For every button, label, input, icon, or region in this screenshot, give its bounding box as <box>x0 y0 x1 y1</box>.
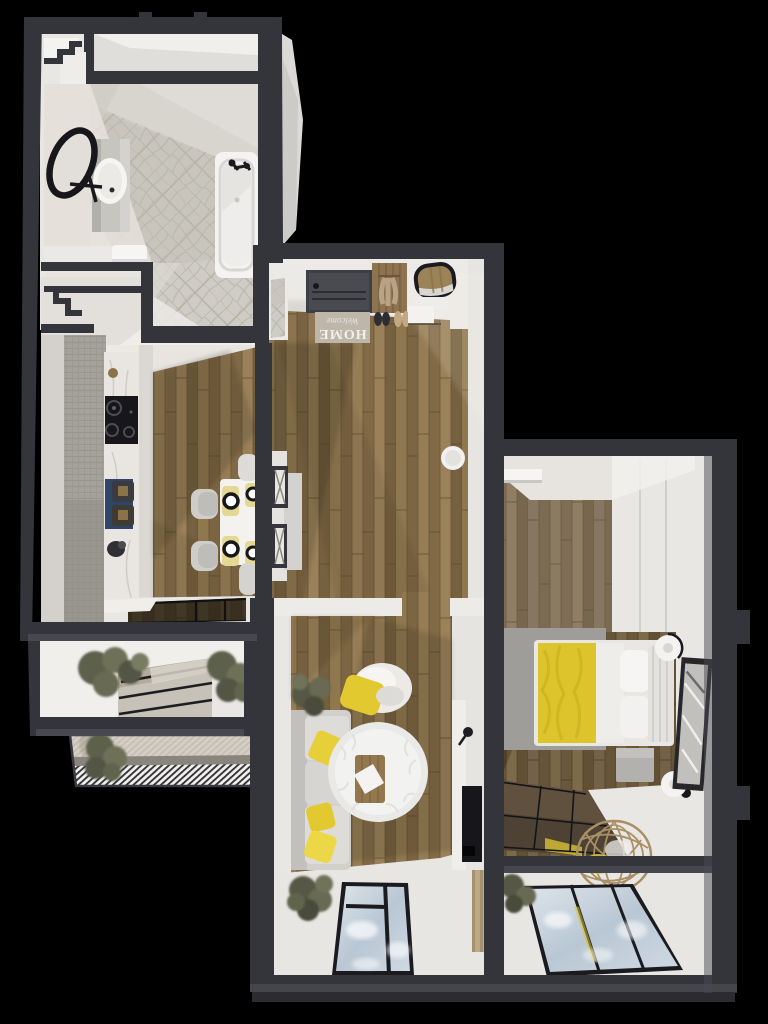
svg-text:Welcome: Welcome <box>326 316 358 326</box>
svg-text:HOME: HOME <box>318 326 366 341</box>
